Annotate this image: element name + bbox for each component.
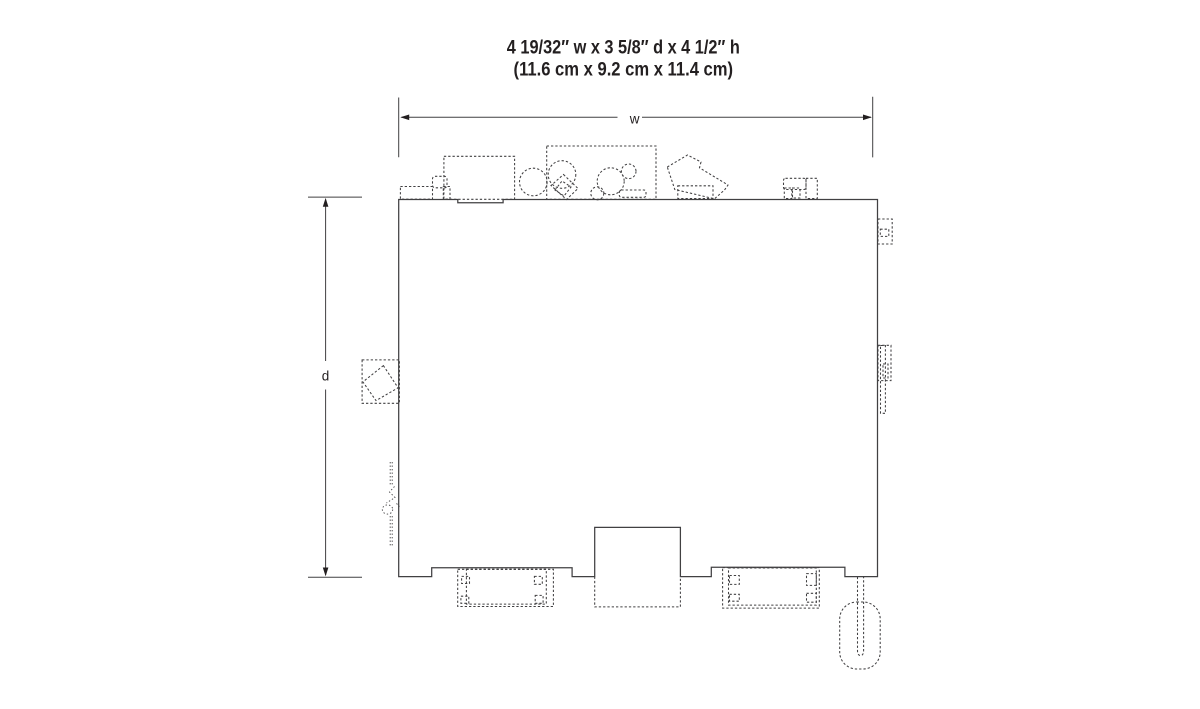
svg-text:d: d xyxy=(322,368,330,383)
svg-text:(11.6 cm x 9.2 cm x 11.4 cm): (11.6 cm x 9.2 cm x 11.4 cm) xyxy=(514,60,734,81)
svg-text:w: w xyxy=(629,111,640,126)
svg-text:4 19/32″ w x 3 5/8″ d x 4 1/2″: 4 19/32″ w x 3 5/8″ d x 4 1/2″ h xyxy=(507,37,740,58)
